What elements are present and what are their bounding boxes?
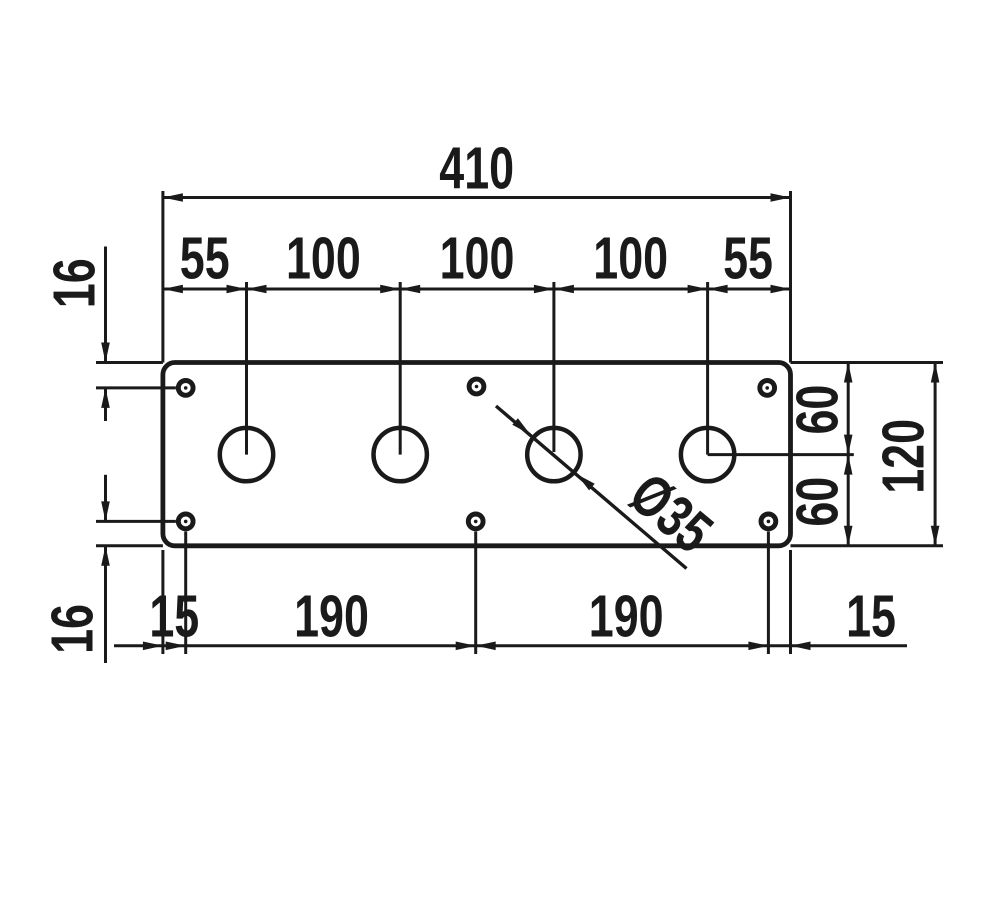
svg-text:16: 16 xyxy=(43,258,108,308)
svg-text:Ø35: Ø35 xyxy=(617,461,724,565)
svg-text:15: 15 xyxy=(846,585,896,650)
svg-text:60: 60 xyxy=(786,385,851,435)
svg-text:190: 190 xyxy=(589,585,664,650)
svg-text:55: 55 xyxy=(723,227,773,292)
svg-text:100: 100 xyxy=(593,227,668,292)
svg-text:60: 60 xyxy=(786,477,851,527)
svg-text:16: 16 xyxy=(41,604,106,654)
svg-text:190: 190 xyxy=(294,585,369,650)
svg-text:55: 55 xyxy=(180,227,230,292)
svg-text:15: 15 xyxy=(149,585,199,650)
svg-text:100: 100 xyxy=(440,227,515,292)
svg-text:410: 410 xyxy=(439,137,514,202)
svg-text:120: 120 xyxy=(872,419,937,494)
svg-text:100: 100 xyxy=(286,227,361,292)
